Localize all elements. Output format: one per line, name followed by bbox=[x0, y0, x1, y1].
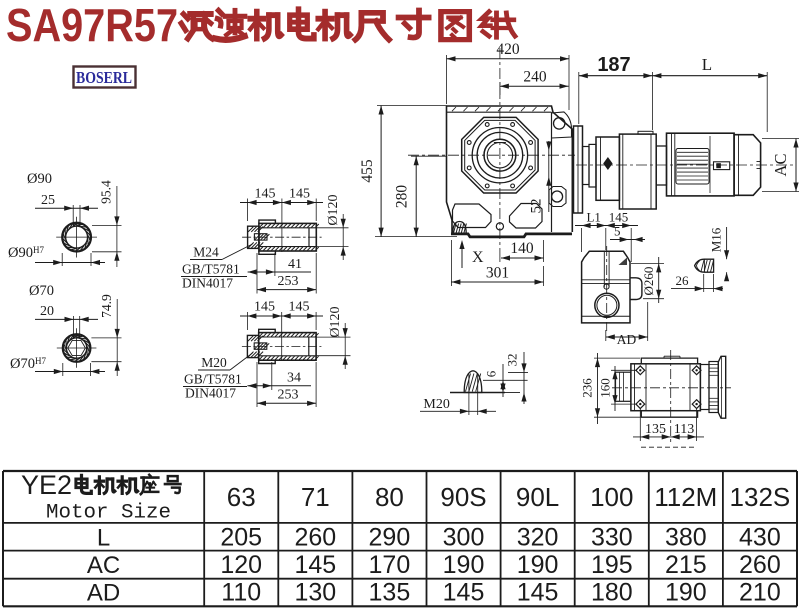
svg-text:Motor Size: Motor Size bbox=[46, 502, 171, 525]
svg-text:135: 135 bbox=[369, 579, 411, 607]
svg-text:205: 205 bbox=[220, 523, 262, 551]
svg-text:130: 130 bbox=[294, 579, 336, 607]
svg-text:145: 145 bbox=[254, 300, 275, 315]
svg-text:AC: AC bbox=[771, 154, 790, 177]
svg-text:145: 145 bbox=[609, 210, 629, 225]
svg-text:95.4: 95.4 bbox=[99, 180, 114, 204]
svg-text:SA97R57: SA97R57 bbox=[6, 0, 178, 51]
svg-text:180: 180 bbox=[591, 579, 633, 607]
svg-text:BOSERL: BOSERL bbox=[76, 68, 132, 87]
svg-text:145: 145 bbox=[289, 300, 310, 315]
svg-text:110: 110 bbox=[221, 579, 261, 607]
svg-text:420: 420 bbox=[496, 41, 520, 58]
svg-text:145: 145 bbox=[443, 579, 485, 607]
svg-text:DIN4017: DIN4017 bbox=[185, 386, 236, 401]
svg-text:Ø120: Ø120 bbox=[326, 194, 341, 225]
svg-text:80: 80 bbox=[375, 482, 404, 512]
svg-text:X: X bbox=[472, 249, 484, 266]
svg-text:430: 430 bbox=[739, 523, 781, 551]
svg-text:320: 320 bbox=[517, 523, 559, 551]
svg-text:240: 240 bbox=[523, 69, 547, 86]
svg-text:GB/T5781: GB/T5781 bbox=[182, 262, 240, 277]
svg-text:132S: 132S bbox=[730, 482, 791, 512]
svg-text:Ø90: Ø90 bbox=[27, 171, 52, 187]
svg-text:Ø70: Ø70 bbox=[29, 283, 54, 299]
svg-text:253: 253 bbox=[278, 274, 299, 289]
svg-text:25: 25 bbox=[41, 193, 55, 208]
svg-text:L: L bbox=[97, 524, 110, 551]
svg-text:41: 41 bbox=[288, 257, 302, 272]
svg-text:120: 120 bbox=[220, 551, 262, 579]
svg-text:380: 380 bbox=[665, 523, 707, 551]
svg-text:M16: M16 bbox=[709, 227, 724, 252]
svg-text:455: 455 bbox=[359, 159, 376, 183]
svg-text:253: 253 bbox=[278, 388, 299, 403]
svg-text:170: 170 bbox=[369, 551, 411, 579]
svg-text:195: 195 bbox=[591, 551, 633, 579]
svg-text:90S: 90S bbox=[440, 482, 486, 512]
svg-text:DIN4017: DIN4017 bbox=[182, 276, 233, 291]
svg-text:34: 34 bbox=[287, 371, 301, 386]
svg-text:AD: AD bbox=[617, 332, 637, 347]
svg-text:260: 260 bbox=[294, 523, 336, 551]
svg-text:135: 135 bbox=[645, 422, 666, 437]
svg-text:300: 300 bbox=[443, 523, 485, 551]
svg-text:236: 236 bbox=[580, 378, 595, 398]
svg-text:145: 145 bbox=[294, 551, 336, 579]
svg-text:280: 280 bbox=[394, 185, 411, 209]
svg-text:290: 290 bbox=[369, 523, 411, 551]
svg-text:M20: M20 bbox=[423, 397, 449, 412]
svg-text:26: 26 bbox=[676, 273, 690, 288]
svg-text:AC: AC bbox=[87, 552, 120, 579]
svg-text:190: 190 bbox=[665, 579, 707, 607]
svg-text:301: 301 bbox=[486, 265, 509, 282]
svg-text:32: 32 bbox=[505, 354, 520, 367]
svg-text:74.9: 74.9 bbox=[99, 294, 114, 318]
svg-text:L: L bbox=[702, 55, 712, 74]
svg-text:GB/T5781: GB/T5781 bbox=[184, 372, 242, 387]
svg-text:113: 113 bbox=[674, 422, 694, 437]
svg-text:140: 140 bbox=[510, 240, 534, 257]
svg-text:L1: L1 bbox=[586, 210, 600, 225]
svg-text:Ø260: Ø260 bbox=[641, 267, 656, 296]
svg-text:Ø120: Ø120 bbox=[328, 306, 343, 337]
svg-text:90L: 90L bbox=[516, 482, 559, 512]
svg-text:M24: M24 bbox=[193, 245, 219, 260]
svg-text:160: 160 bbox=[598, 378, 613, 398]
svg-text:52: 52 bbox=[529, 199, 545, 214]
svg-text:6: 6 bbox=[484, 370, 499, 377]
svg-text:330: 330 bbox=[591, 523, 633, 551]
svg-text:20: 20 bbox=[40, 304, 54, 319]
svg-text:YE2: YE2 bbox=[21, 470, 72, 500]
svg-text:190: 190 bbox=[517, 551, 559, 579]
svg-text:190: 190 bbox=[443, 551, 485, 579]
svg-text:260: 260 bbox=[739, 551, 781, 579]
svg-text:71: 71 bbox=[301, 482, 330, 512]
svg-text:5: 5 bbox=[614, 224, 621, 239]
svg-text:100: 100 bbox=[590, 482, 633, 512]
svg-text:63: 63 bbox=[227, 482, 256, 512]
svg-text:145: 145 bbox=[255, 187, 276, 202]
svg-text:210: 210 bbox=[739, 579, 781, 607]
svg-text:215: 215 bbox=[665, 551, 707, 579]
svg-text:M20: M20 bbox=[201, 355, 227, 370]
svg-text:187: 187 bbox=[597, 54, 630, 76]
svg-text:145: 145 bbox=[517, 579, 559, 607]
svg-text:145: 145 bbox=[289, 187, 310, 202]
svg-text:AD: AD bbox=[87, 580, 120, 607]
svg-text:112M: 112M bbox=[654, 482, 717, 512]
